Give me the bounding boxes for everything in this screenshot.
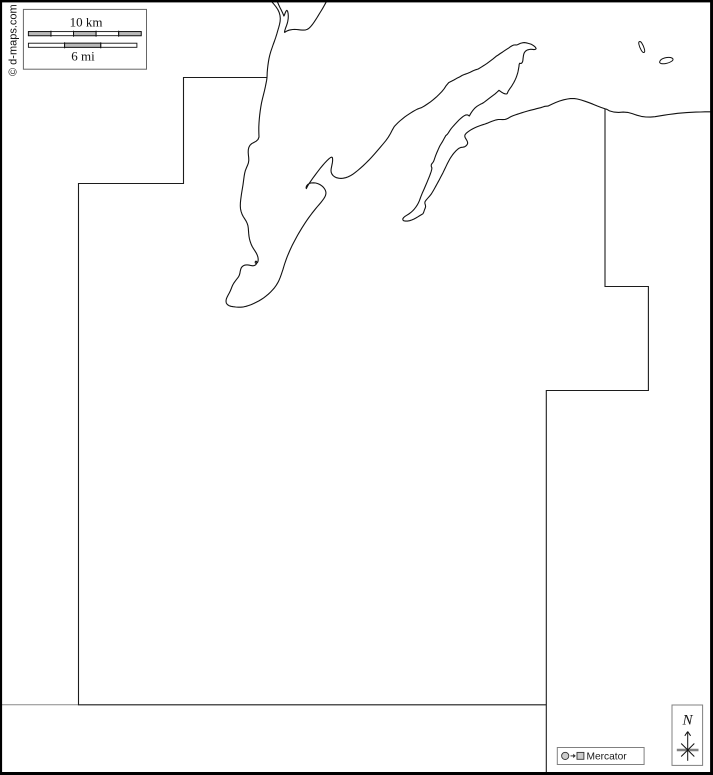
- svg-text:Mercator: Mercator: [587, 752, 628, 763]
- svg-text:N: N: [681, 713, 693, 729]
- svg-text:© d-maps.com: © d-maps.com: [8, 4, 20, 76]
- svg-text:10 km: 10 km: [70, 15, 103, 30]
- svg-text:6 mi: 6 mi: [71, 49, 95, 64]
